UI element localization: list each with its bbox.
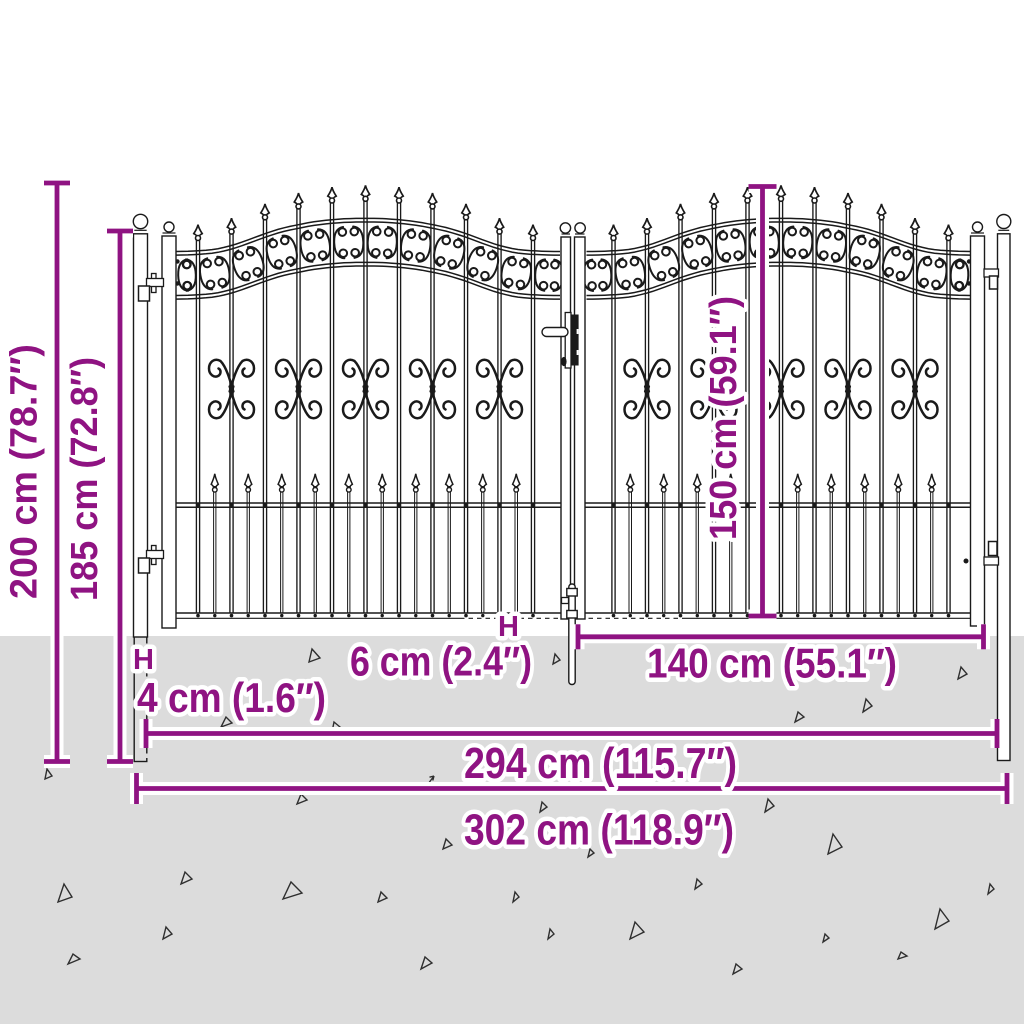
svg-text:150 cm (59.1″): 150 cm (59.1″): [703, 296, 745, 540]
svg-text:185 cm (72.8″): 185 cm (72.8″): [64, 357, 106, 601]
svg-text:200 cm (78.7″): 200 cm (78.7″): [4, 344, 46, 599]
svg-text:H: H: [133, 644, 154, 676]
svg-text:H: H: [498, 611, 519, 643]
svg-text:302 cm (118.9″): 302 cm (118.9″): [464, 806, 734, 855]
svg-text:6 cm (2.4″): 6 cm (2.4″): [350, 638, 532, 685]
svg-text:4 cm (1.6″): 4 cm (1.6″): [137, 674, 326, 721]
svg-text:294 cm (115.7″): 294 cm (115.7″): [464, 739, 737, 788]
svg-text:140 cm (55.1″): 140 cm (55.1″): [647, 640, 897, 687]
